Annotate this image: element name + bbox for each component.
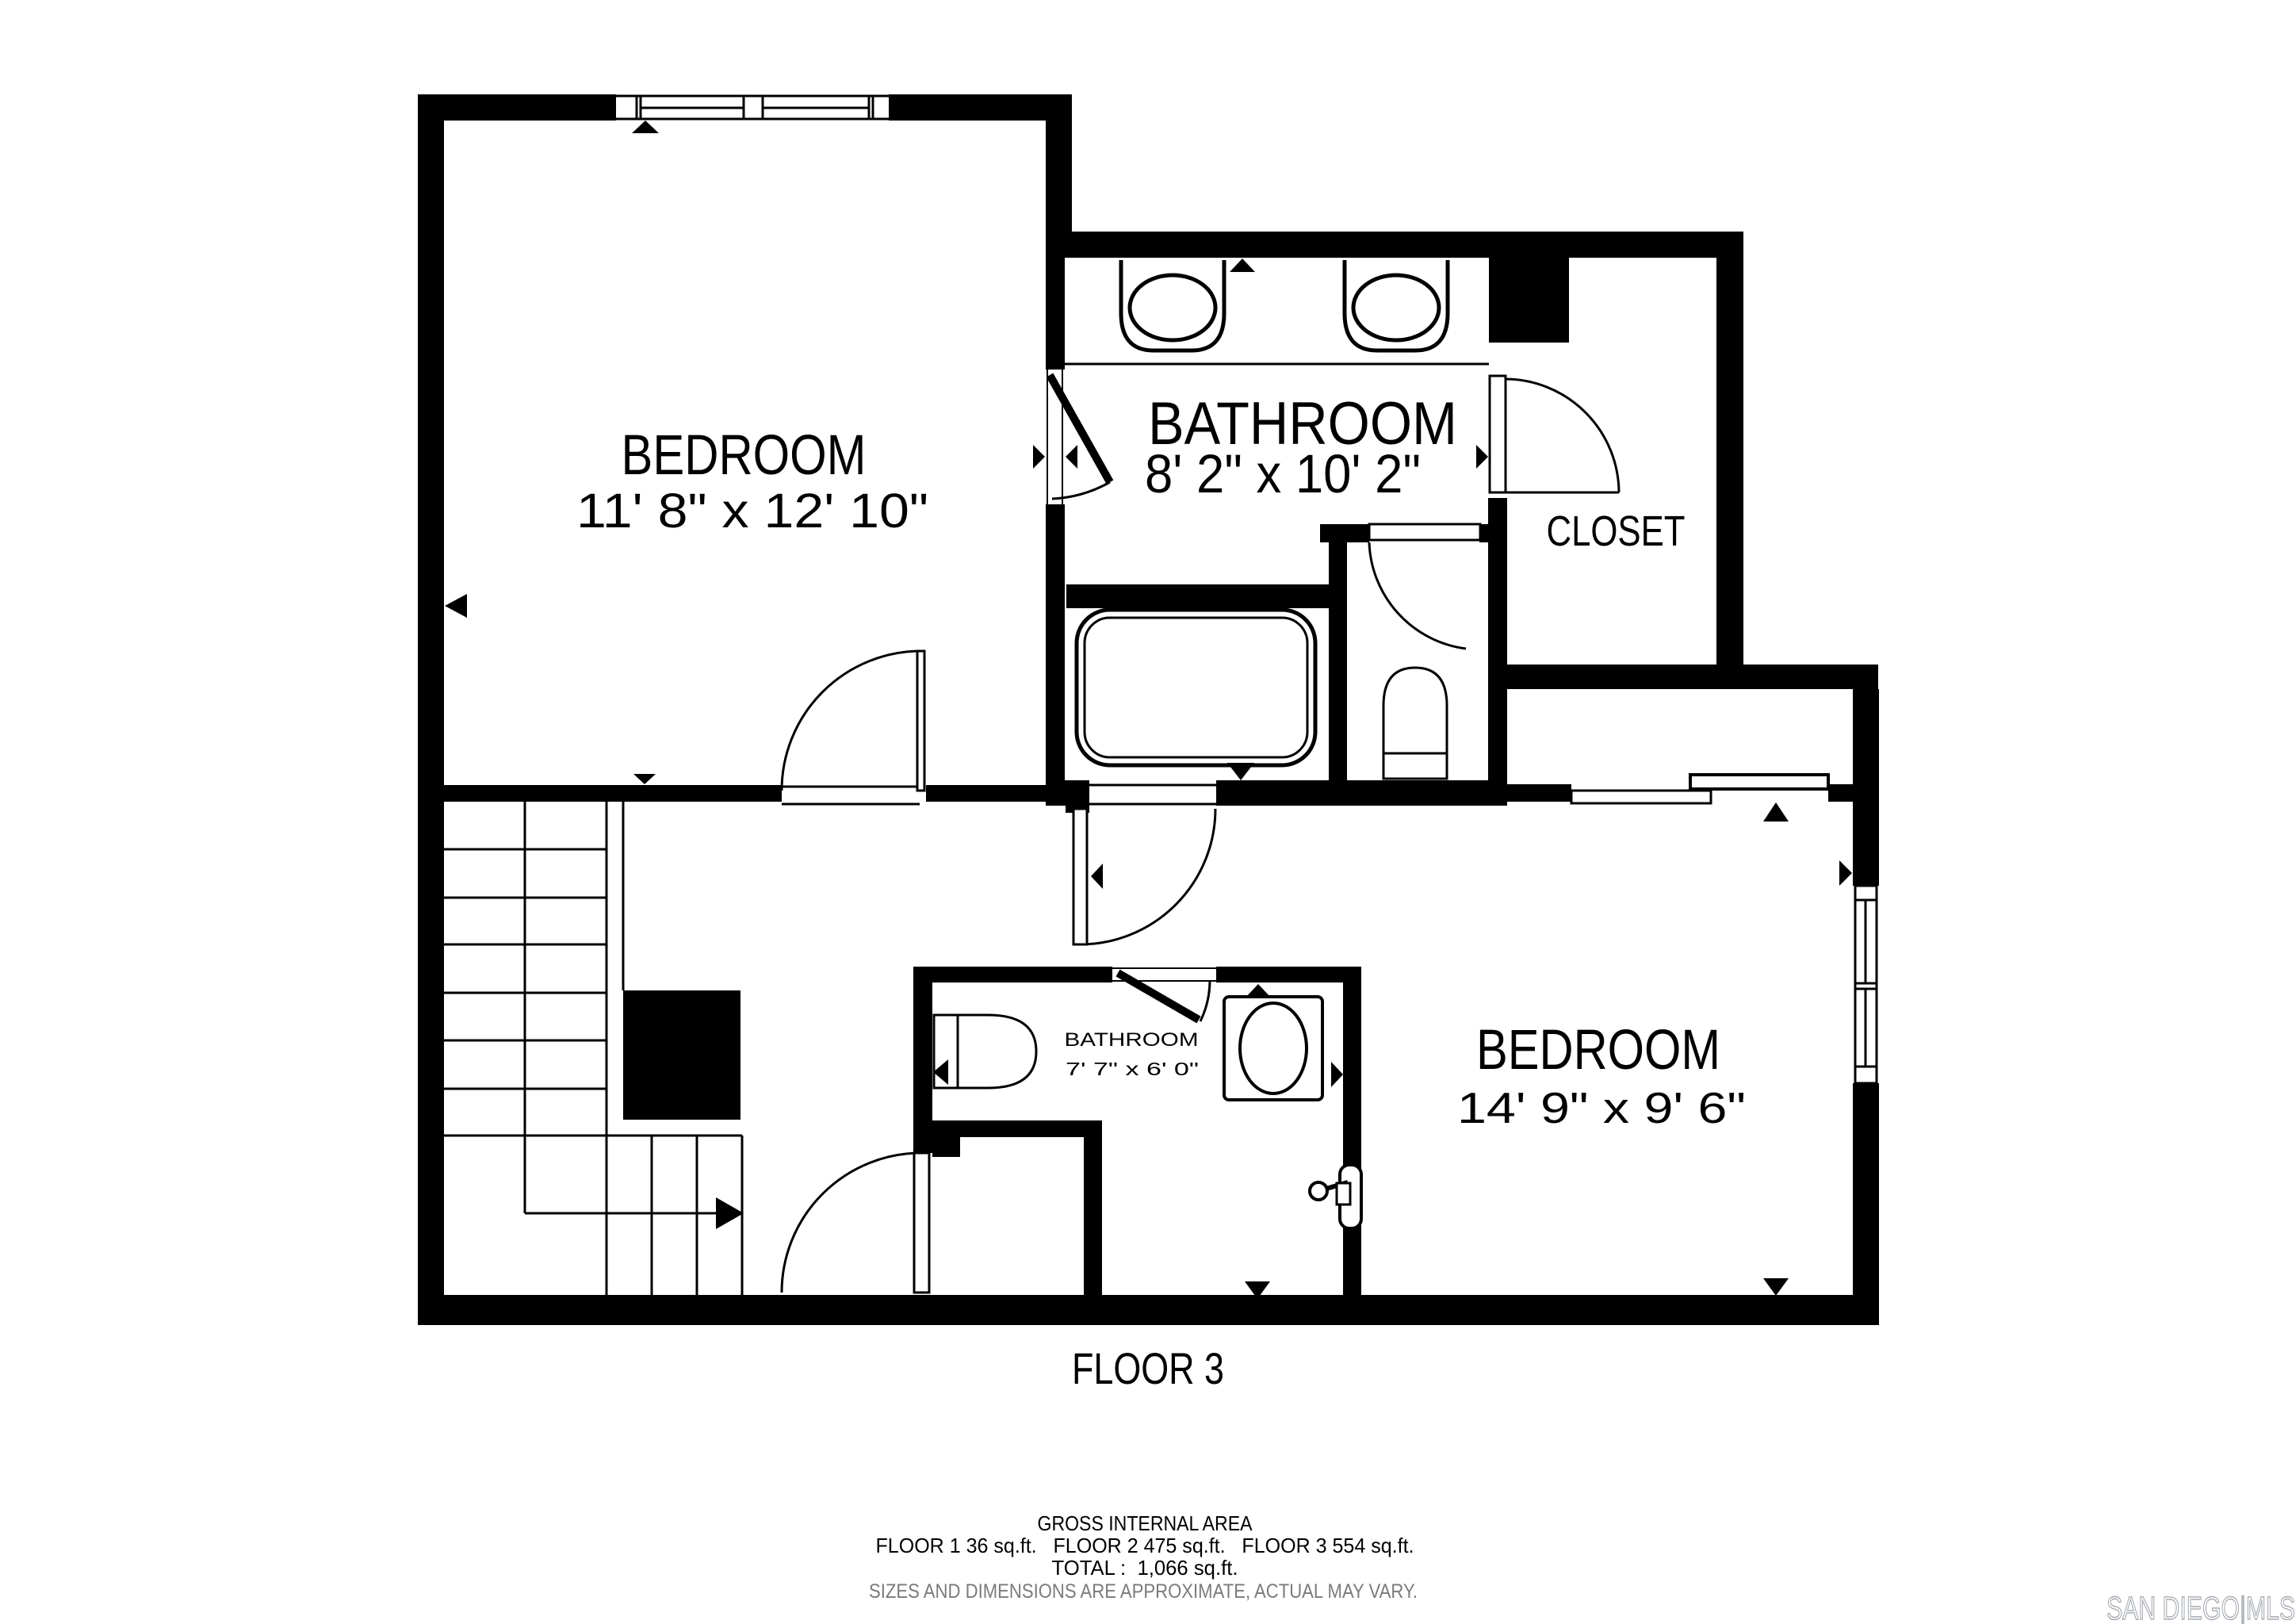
svg-text:7' 7" x 6' 0": 7' 7" x 6' 0" (1066, 1059, 1199, 1079)
svg-text:BATHROOM: BATHROOM (1065, 1029, 1199, 1051)
svg-text:FLOOR 3: FLOOR 3 (1072, 1343, 1224, 1393)
svg-text:GROSS INTERNAL AREA: GROSS INTERNAL AREA (1038, 1511, 1253, 1535)
svg-text:SIZES AND DIMENSIONS ARE APPRO: SIZES AND DIMENSIONS ARE APPROXIMATE, AC… (869, 1580, 1418, 1603)
svg-text:8' 2" x 10' 2": 8' 2" x 10' 2" (1145, 443, 1421, 504)
svg-text:CLOSET: CLOSET (1547, 507, 1686, 555)
svg-text:TOTAL : 1,066 sq.ft.: TOTAL : 1,066 sq.ft. (1052, 1556, 1238, 1580)
svg-text:11' 8" x 12' 10": 11' 8" x 12' 10" (576, 484, 928, 538)
svg-text:FLOOR 1 36 sq.ft. FLOOR 2 47: FLOOR 1 36 sq.ft. FLOOR 2 475 sq.ft. FLO… (876, 1534, 1414, 1557)
svg-text:BEDROOM: BEDROOM (1476, 1019, 1720, 1082)
svg-text:SAN DIEGO|MLS: SAN DIEGO|MLS (2107, 1590, 2295, 1624)
svg-text:BEDROOM: BEDROOM (622, 424, 867, 487)
svg-text:14' 9" x 9' 6": 14' 9" x 9' 6" (1457, 1083, 1746, 1132)
